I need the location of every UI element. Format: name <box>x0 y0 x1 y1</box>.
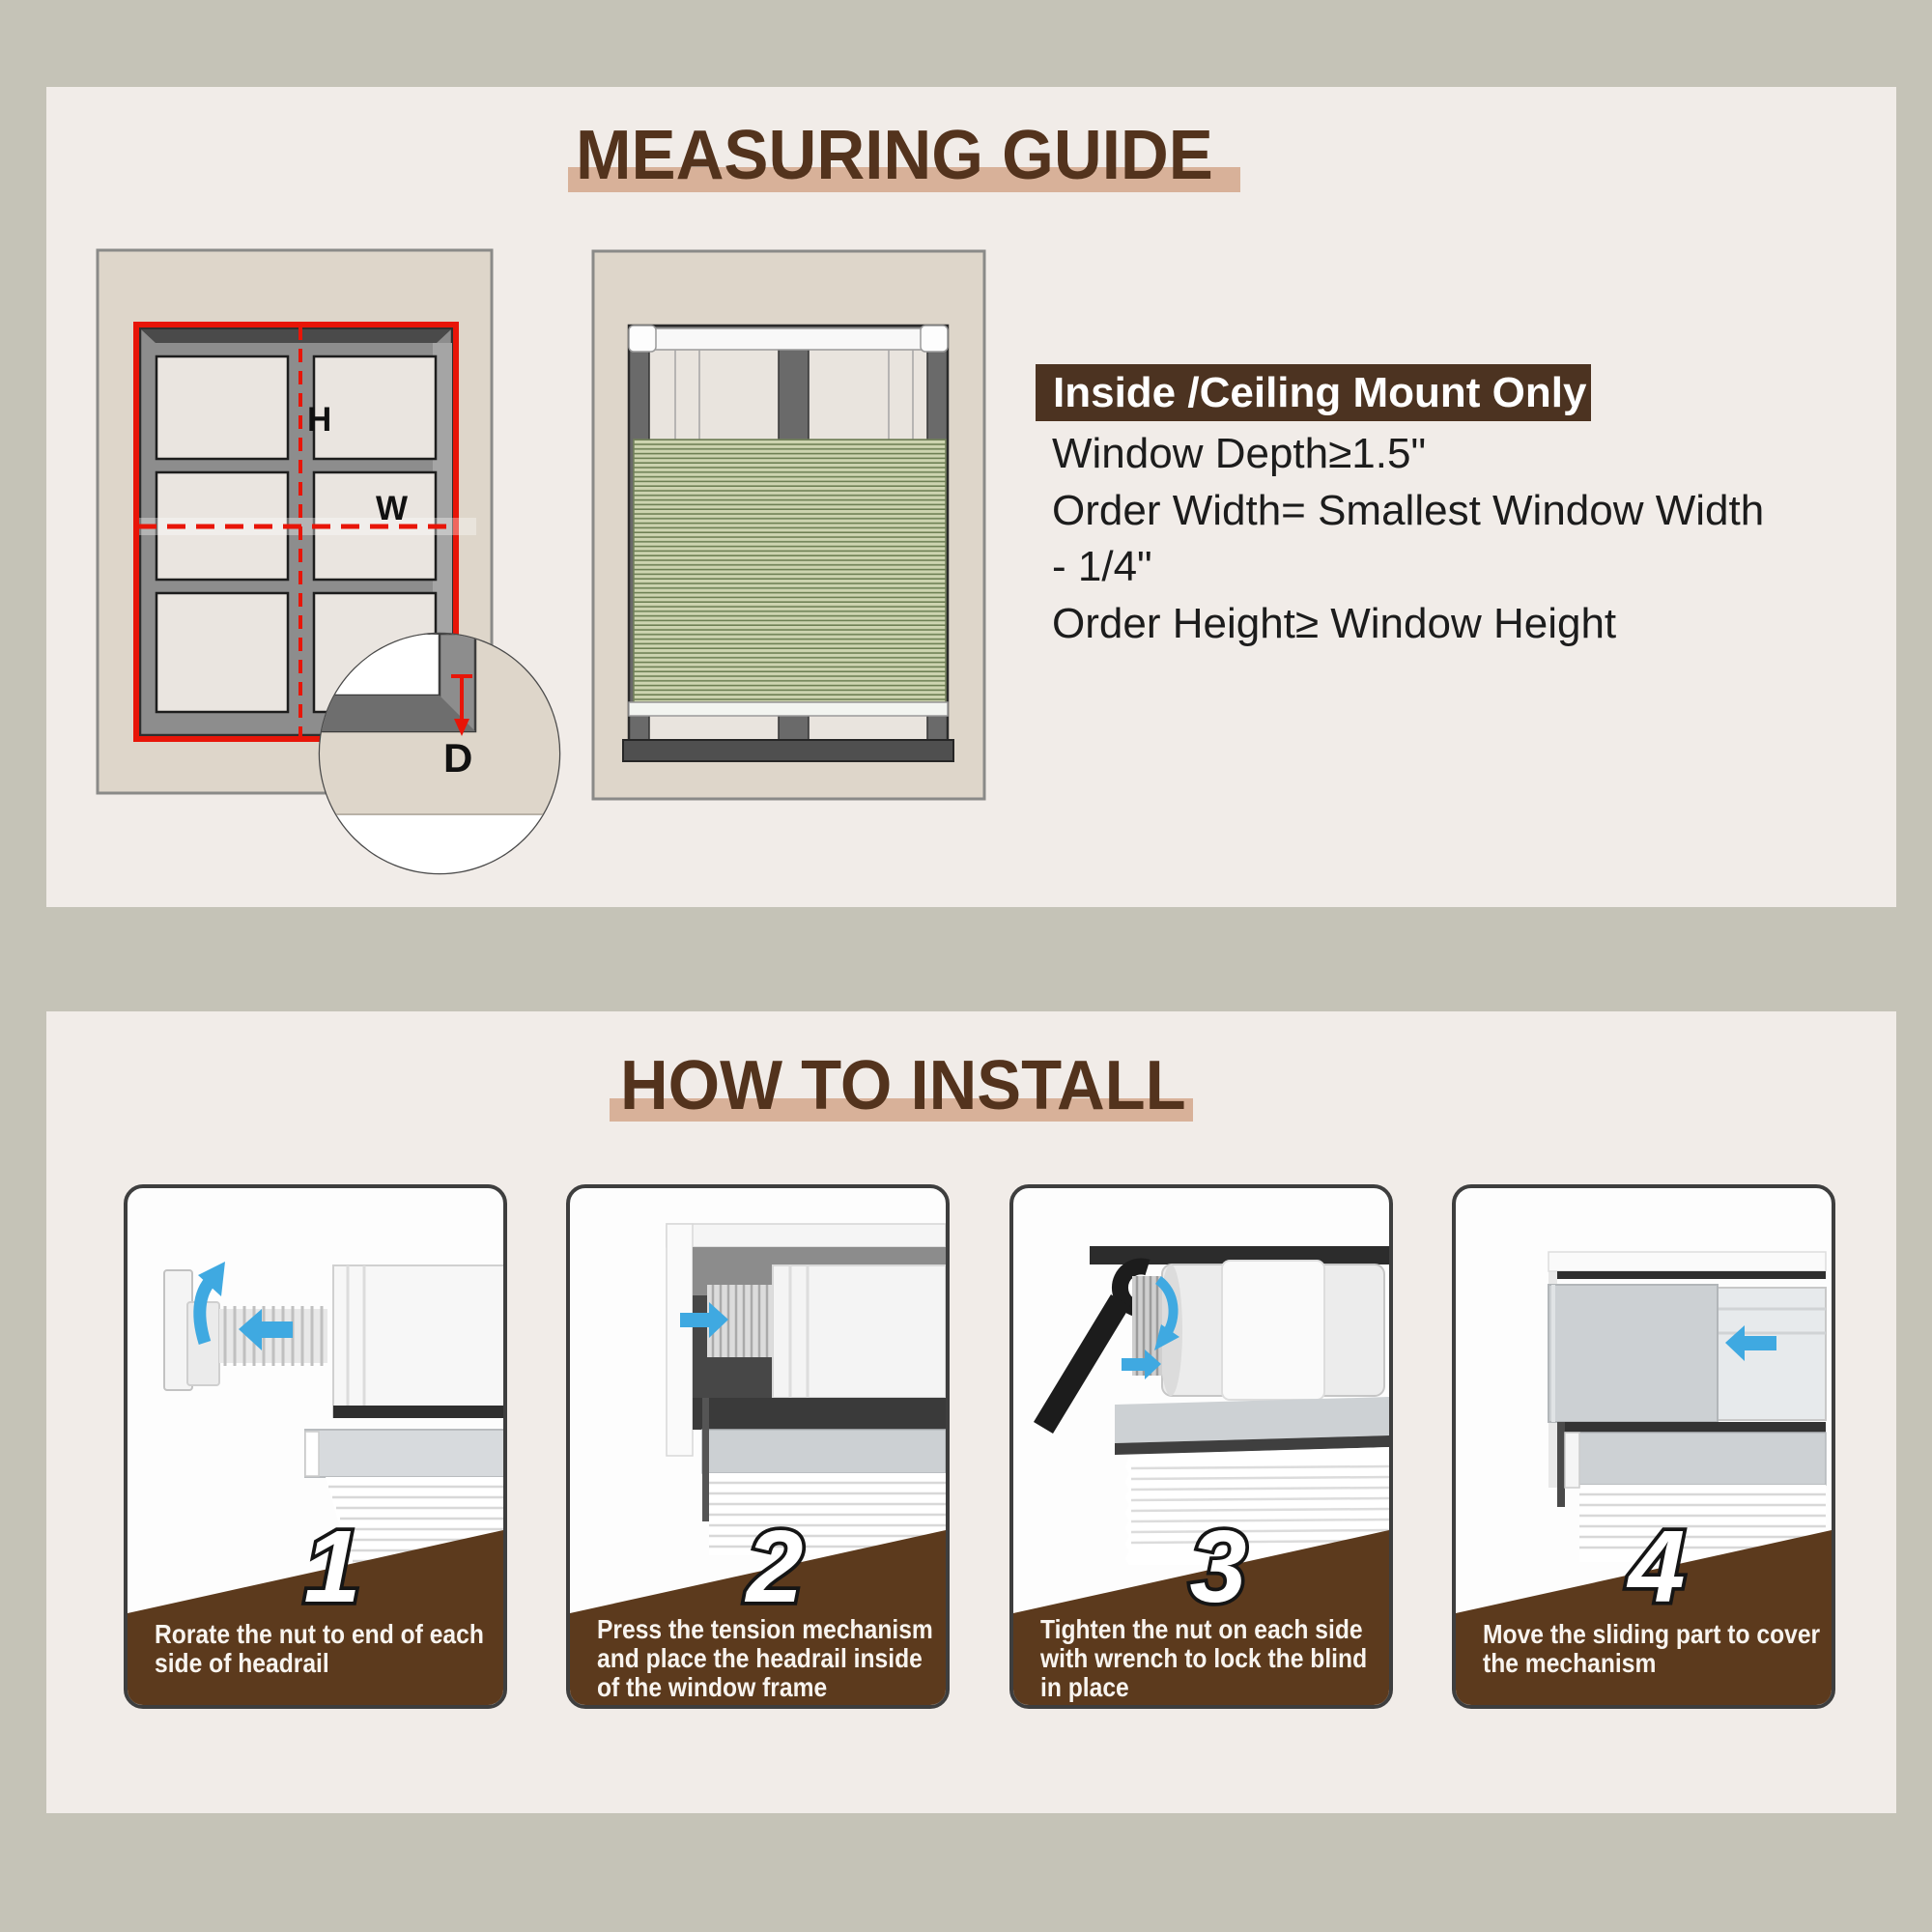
svg-text:1: 1 <box>304 1510 361 1624</box>
svg-text:D: D <box>443 735 472 781</box>
svg-text:3: 3 <box>1190 1510 1247 1624</box>
svg-text:4: 4 <box>1627 1510 1686 1624</box>
svg-text:2: 2 <box>745 1510 804 1624</box>
svg-text:W: W <box>376 490 408 527</box>
svg-text:H: H <box>307 401 331 439</box>
